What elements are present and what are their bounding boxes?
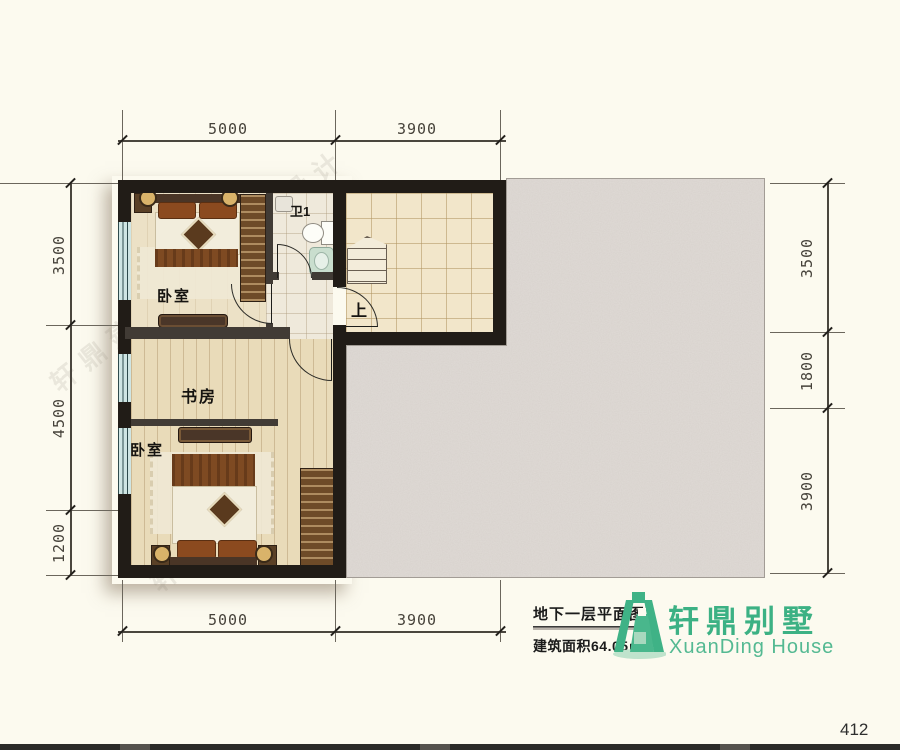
dim-bottom-2: 3900 [382,611,452,629]
dimension-line-right [827,183,829,573]
wall-study-partial [131,419,278,426]
wall-bath-bottom-b [312,272,333,280]
room-label-bedroom-bottom: 卧室 [130,439,164,460]
room-label-bath: 卫1 [290,201,310,220]
dim-top-2: 3900 [382,120,452,138]
dim-bottom-1: 5000 [193,611,263,629]
window [118,354,131,402]
tv-bench [158,314,228,328]
extension-line [770,183,845,184]
page-number: 412 [840,720,890,740]
wall-stairhall-right [493,180,506,345]
wall-middle-vertical-upper [333,193,346,287]
page-bottom-edge [0,744,900,750]
dimension-line-top [118,140,506,142]
wardrobe [300,468,335,570]
scanned-floorplan-page: 轩鼎建筑设计 轩鼎建筑设计 轩鼎建筑设计 轩鼎建筑设计 轩鼎建筑设计 [0,0,900,750]
extension-line [46,325,118,326]
dim-left-1: 3500 [50,220,68,290]
extension-line [770,332,845,333]
extension-line [335,110,336,180]
extension-line [770,573,845,574]
extension-line [500,110,501,180]
bed-foot-blanket [155,249,238,267]
bed-foot-blanket [172,454,255,488]
brand-name-en: XuanDing House [669,636,834,659]
logo-house-icon [610,588,666,662]
toilet-icon [302,223,324,243]
window [118,222,131,300]
brand-name-cn: 轩鼎别墅 [668,596,820,641]
dimension-line-left [70,183,72,575]
dim-top-1: 5000 [193,120,263,138]
room-label-study: 书房 [181,383,217,407]
wall-bedroom1-bottom [125,327,290,339]
extension-line [770,408,845,409]
dim-right-3: 3900 [798,456,816,526]
bed-pillow [158,202,196,219]
dim-right-2: 1800 [798,336,816,406]
wall-bath-left-upper [266,193,273,284]
bed-headboard [170,557,257,565]
dimension-line-bottom [118,631,506,633]
dim-right-1: 3500 [798,223,816,293]
wall-bottom [118,565,346,578]
shower-icon [314,252,329,270]
extension-line [0,183,118,184]
room-label-up: 上 [351,297,367,321]
room-label-bedroom-top: 卧室 [157,285,191,306]
wall-middle-vertical-lower [333,325,346,578]
dresser [178,427,252,443]
wall-stairhall-bottom [346,332,506,345]
window [118,428,131,494]
extension-line [122,110,123,180]
bedside-lamp-icon [255,545,273,563]
wall-top [118,180,506,193]
dim-left-2: 4500 [50,383,68,453]
bedside-lamp-icon [153,545,171,563]
dim-left-3: 1200 [50,508,68,578]
